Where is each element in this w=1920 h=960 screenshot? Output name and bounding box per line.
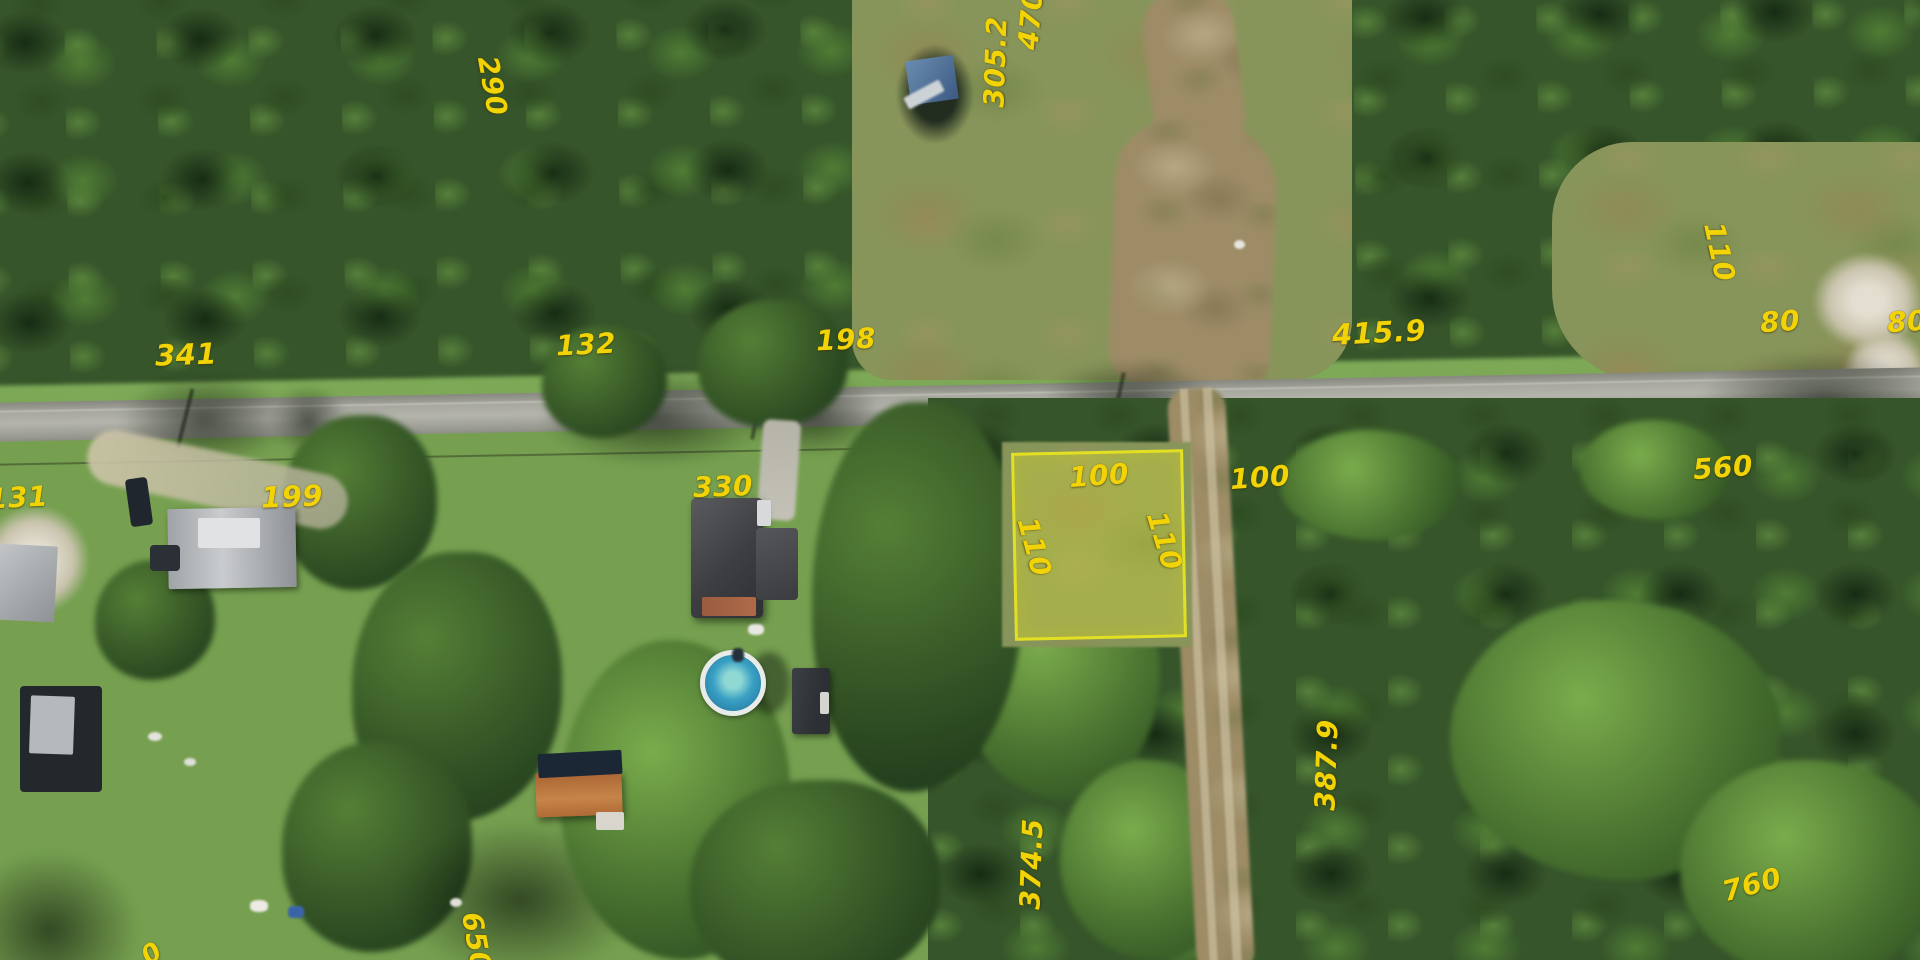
lot-dimension-label: 132 xyxy=(555,329,616,360)
lot-dimension-label: 110 xyxy=(1013,514,1056,579)
lot-dimension-label: 100 xyxy=(1068,460,1130,492)
aerial-map: 290305.24701108080341132198415.913119933… xyxy=(0,0,1920,960)
lot-dimension-label: 650 xyxy=(457,910,495,960)
lot-dimension-label: 80 xyxy=(1759,307,1801,338)
lot-dimension-label: 470 xyxy=(1014,0,1047,51)
lot-dimension-label: 199 xyxy=(260,481,323,512)
lot-dimension-label: 290 xyxy=(473,54,511,118)
lot-labels-layer: 290305.24701108080341132198415.913119933… xyxy=(0,0,1920,960)
lot-dimension-label: 100 xyxy=(1229,462,1291,494)
lot-dimension-label: 387.9 xyxy=(1311,719,1342,811)
lot-dimension-label: 415.9 xyxy=(1331,316,1427,350)
lot-dimension-label: 0 xyxy=(137,938,167,960)
lot-dimension-label: 110 xyxy=(1699,220,1739,284)
lot-dimension-label: 131 xyxy=(0,482,49,513)
lot-dimension-label: 330 xyxy=(693,472,754,502)
lot-dimension-label: 374.5 xyxy=(1016,818,1047,910)
lot-dimension-label: 341 xyxy=(154,339,217,370)
lot-dimension-label: 760 xyxy=(1719,864,1784,907)
lot-dimension-label: 560 xyxy=(1692,452,1754,484)
lot-dimension-label: 305.2 xyxy=(980,16,1011,108)
lot-dimension-label: 80 xyxy=(1886,307,1920,338)
lot-dimension-label: 198 xyxy=(815,324,876,355)
lot-dimension-label: 110 xyxy=(1142,508,1186,574)
